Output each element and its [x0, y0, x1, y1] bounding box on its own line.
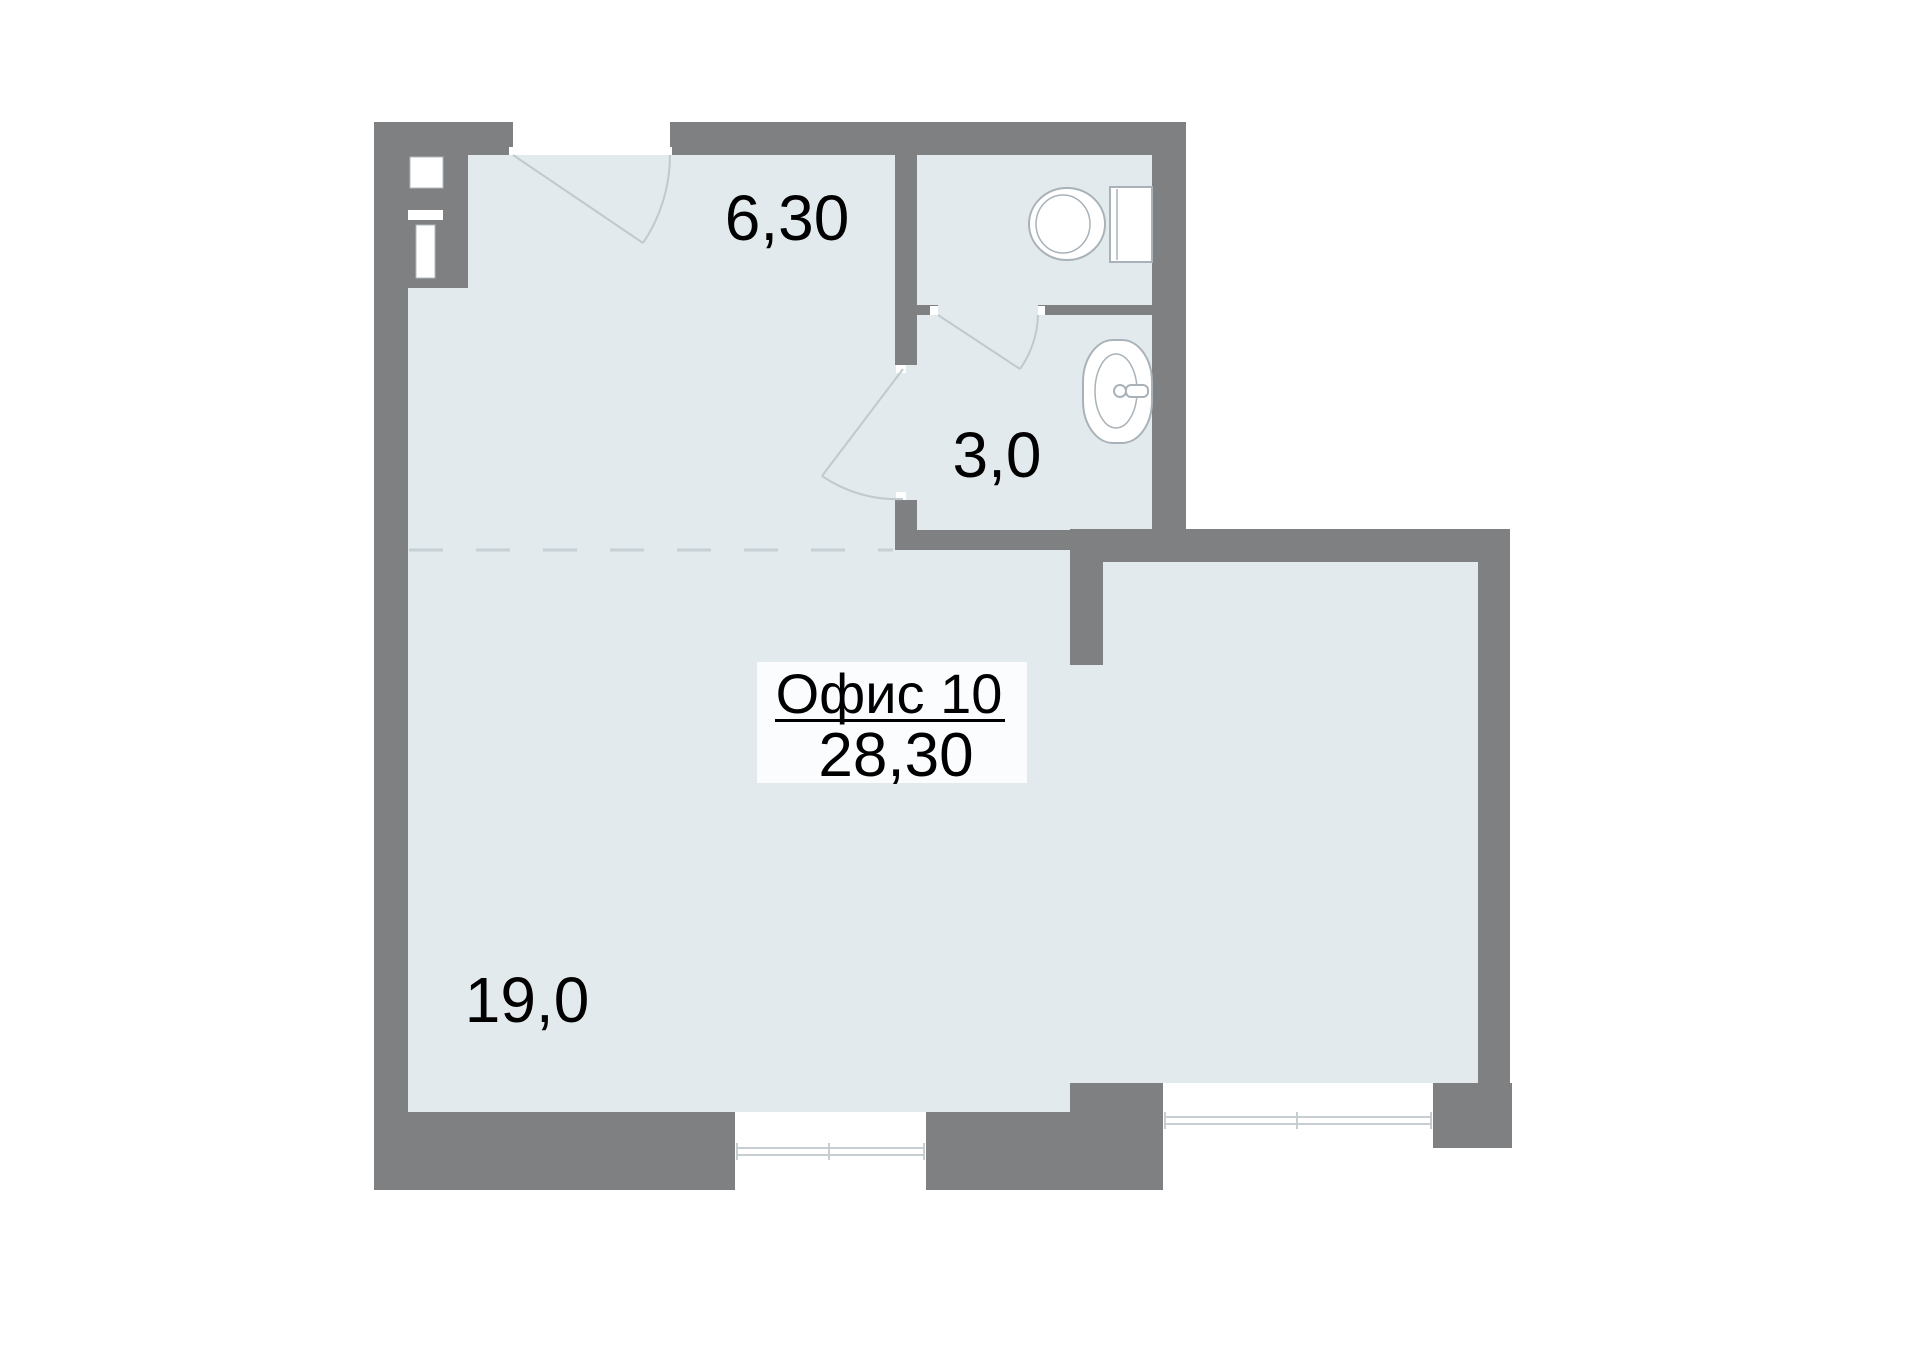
wall-right-section-top	[1070, 529, 1510, 562]
wall-interior-stub	[1070, 550, 1103, 665]
wall-top-right	[670, 122, 1186, 155]
ventilation-shaft-icon	[408, 155, 468, 288]
window-left	[735, 1112, 926, 1190]
shaft-slit	[408, 210, 443, 220]
room-area-main: 19,0	[465, 964, 590, 1036]
wc-door-jamb-tick-right	[1038, 306, 1045, 315]
sink-drain	[1114, 385, 1126, 397]
wall-entry-bathroom-partition	[895, 155, 917, 365]
wall-bottom-right-block	[1433, 1083, 1512, 1148]
sink-faucet	[1126, 385, 1148, 397]
office-title: Офис 10	[776, 662, 1003, 725]
wall-bottom-left-block	[374, 1112, 735, 1190]
entry-door-jamb-tick-left	[509, 147, 518, 155]
wall-bathroom-bottom	[917, 530, 1070, 550]
wall-door-jamb-stub	[895, 500, 917, 550]
wall-bathroom-right-outer	[1152, 122, 1186, 562]
floor-plan-svg: 6,30 3,0 19,0 Офис 10 28,30	[0, 0, 1920, 1357]
office-label-box: Офис 10 28,30	[757, 662, 1027, 790]
room-area-entry: 6,30	[725, 182, 850, 254]
wall-wc-partition	[1038, 305, 1152, 315]
wc-door-jamb-tick-left	[930, 306, 938, 315]
window-right	[1163, 1083, 1433, 1148]
wall-bottom-step	[1070, 1083, 1163, 1112]
sink-icon	[1083, 340, 1152, 443]
window-left-opening	[735, 1112, 926, 1190]
wall-right-outer	[1478, 529, 1510, 1148]
toilet-bowl	[1029, 188, 1105, 260]
shaft-duct-top	[410, 157, 443, 188]
shaft-duct-bottom	[416, 225, 435, 278]
wall-bottom-middle-pier	[926, 1112, 1163, 1190]
floor-right-section	[1070, 562, 1478, 1083]
wall-left-outer	[374, 122, 408, 1112]
entry-door-jamb-tick-right	[663, 147, 672, 155]
toilet-icon	[1029, 187, 1152, 262]
office-area: 28,30	[818, 721, 973, 790]
wall-top-left	[374, 122, 513, 155]
room-area-bathroom: 3,0	[953, 419, 1042, 491]
floor-passage-zone	[917, 550, 1070, 1112]
floor-plan-canvas: 6,30 3,0 19,0 Офис 10 28,30	[0, 0, 1920, 1357]
